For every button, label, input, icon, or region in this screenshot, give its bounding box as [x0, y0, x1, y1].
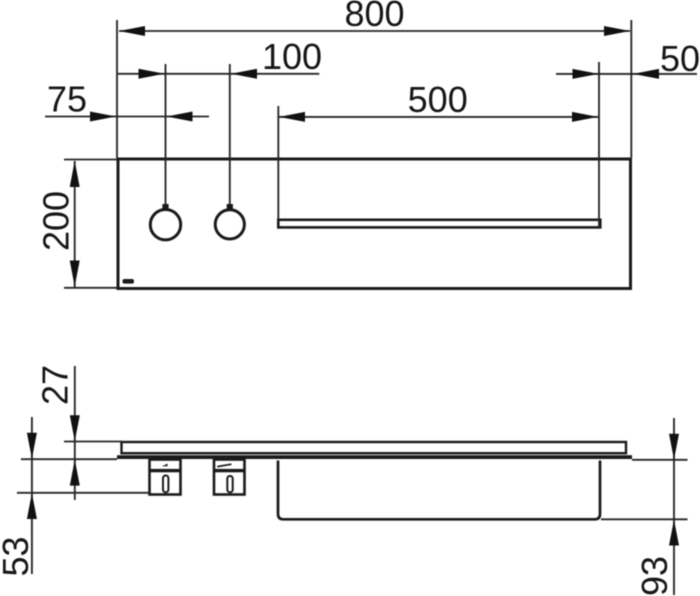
svg-text:27: 27 [35, 365, 76, 405]
svg-text:500: 500 [408, 79, 468, 120]
svg-text:200: 200 [36, 191, 77, 251]
svg-text:75: 75 [47, 78, 87, 119]
svg-text:800: 800 [344, 0, 404, 34]
svg-text:93: 93 [634, 556, 675, 596]
svg-text:53: 53 [0, 536, 36, 576]
svg-text:50: 50 [660, 38, 700, 79]
svg-text:100: 100 [262, 36, 322, 77]
